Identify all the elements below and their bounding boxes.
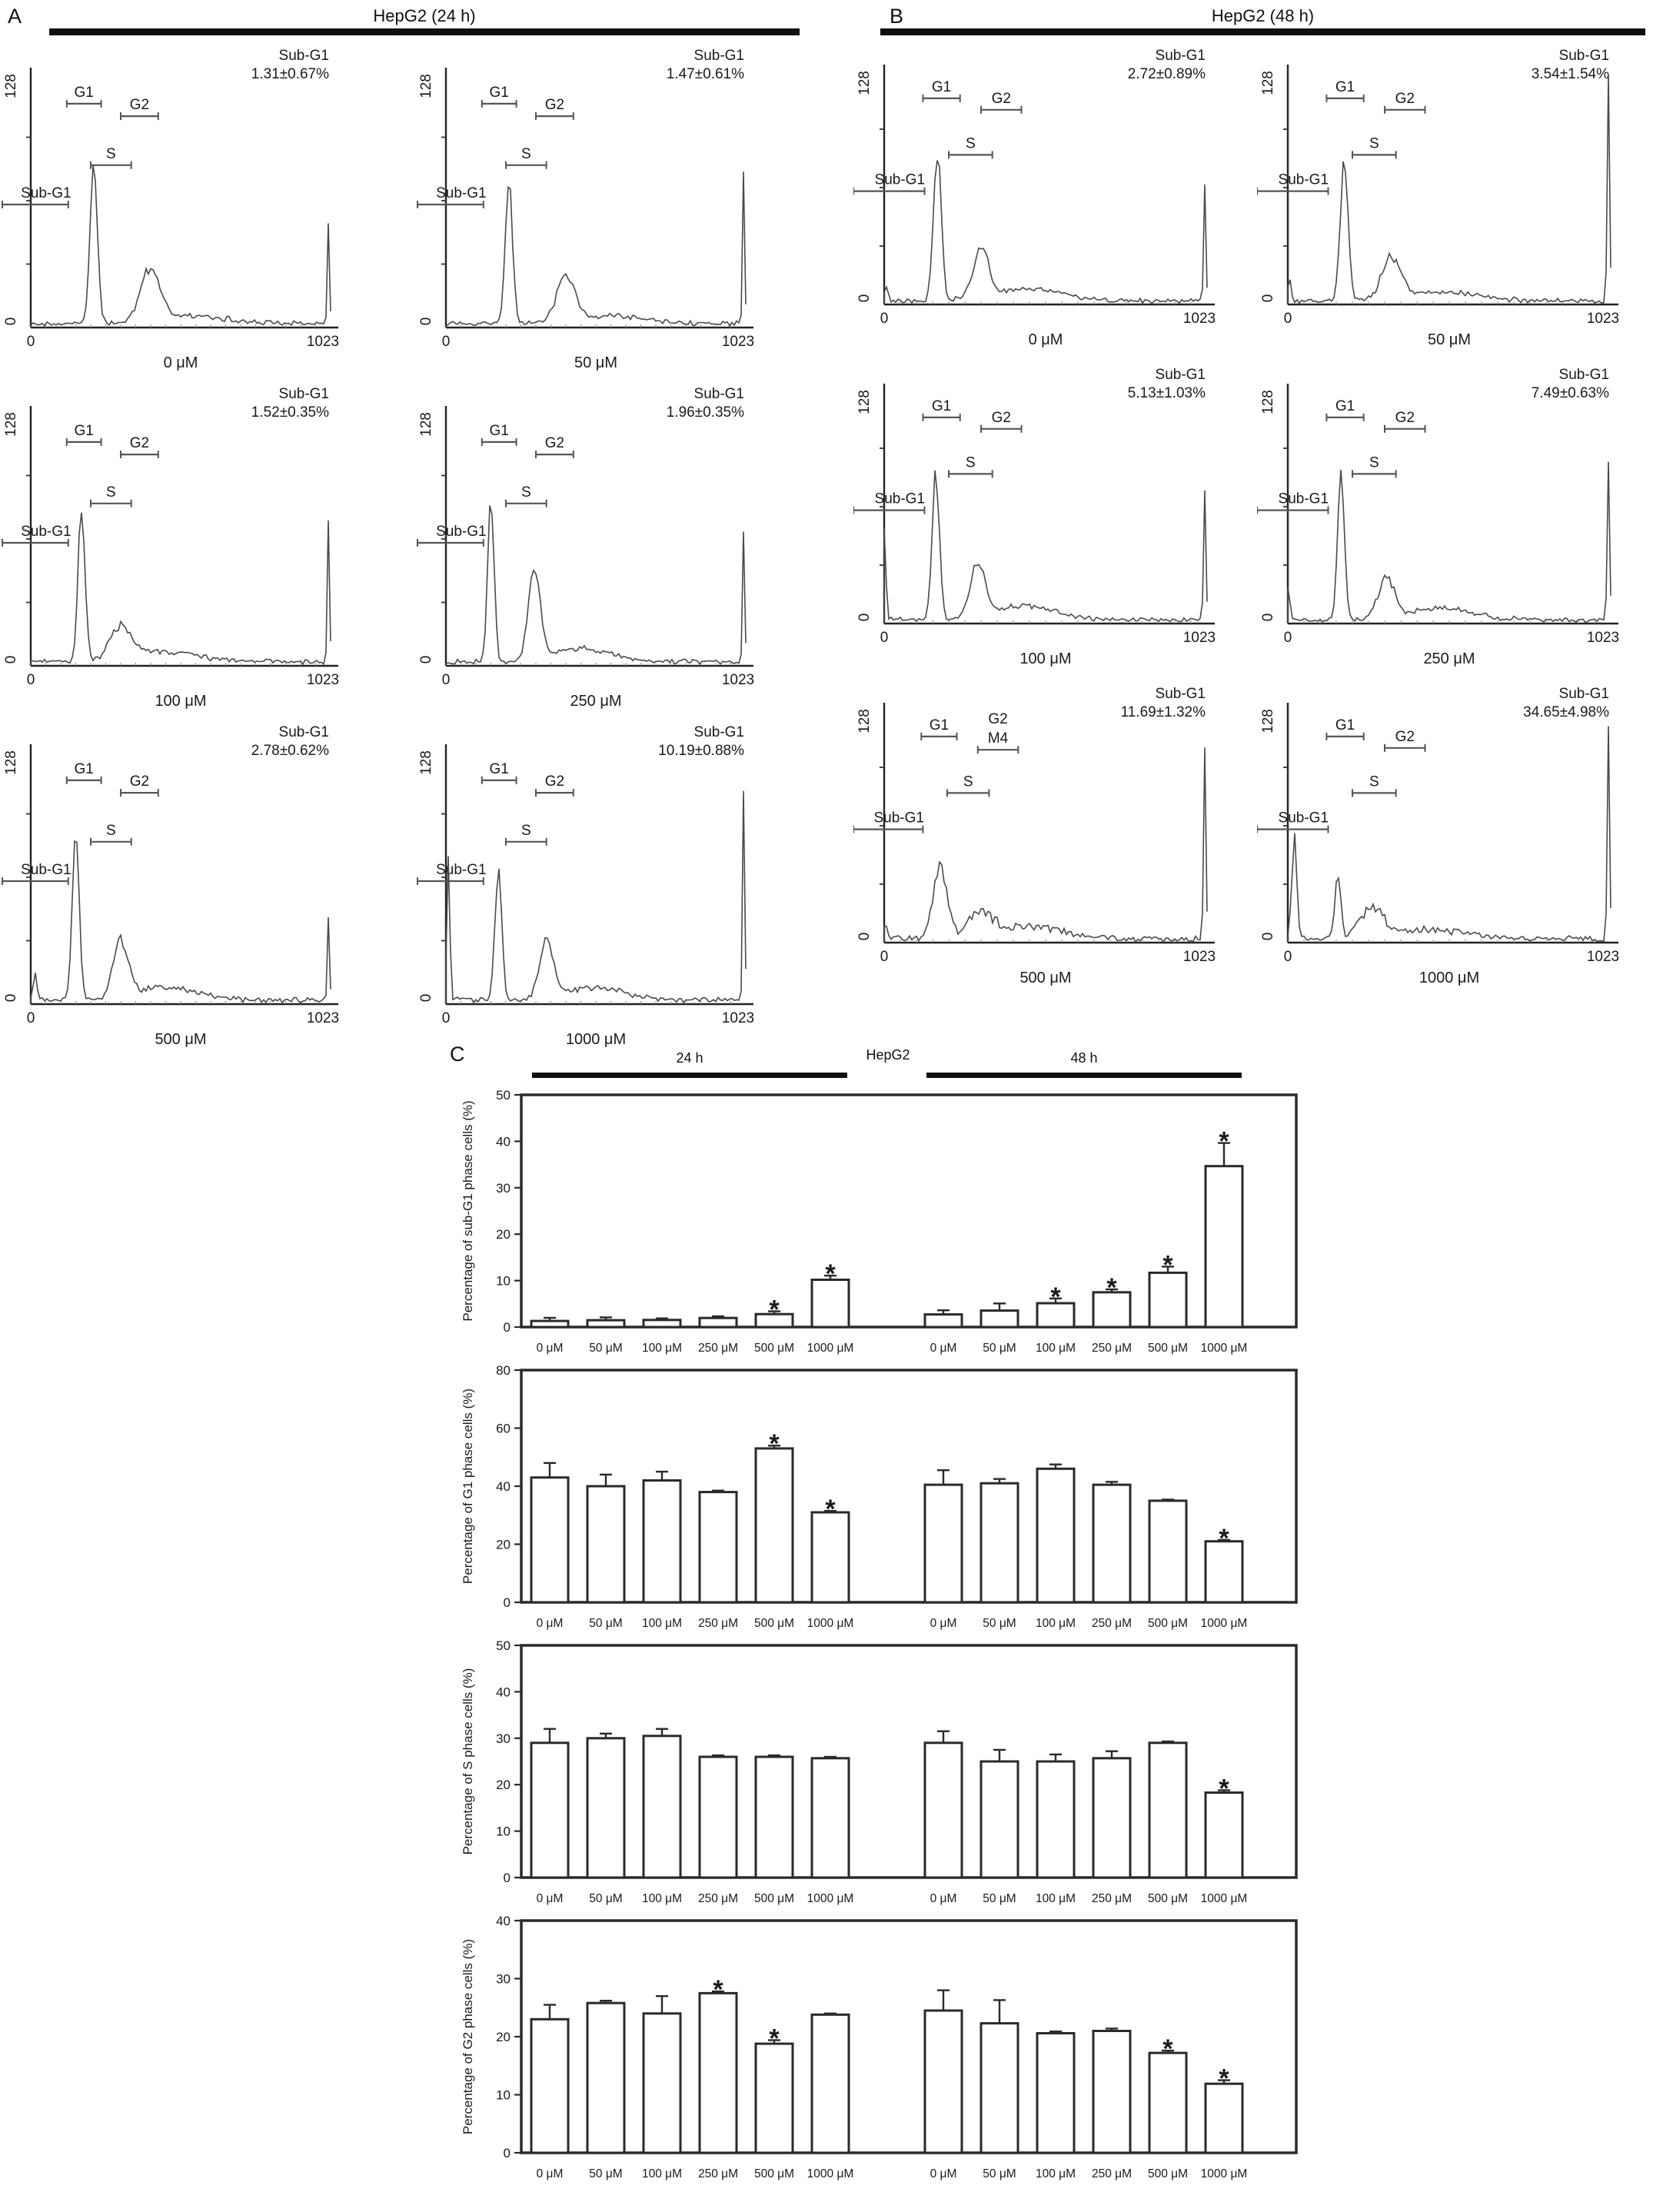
- bar: [587, 1738, 624, 1878]
- bar: [587, 2003, 624, 2153]
- x-max-label: 1023: [1183, 949, 1216, 965]
- y-min-label: 0: [3, 656, 19, 664]
- sig-asterisk: *: [1219, 2064, 1229, 2094]
- concentration-label: 1000 μM: [1419, 970, 1479, 986]
- bar: [531, 1743, 568, 1878]
- bar: [1093, 2031, 1130, 2154]
- category-label: 250 μM: [698, 1617, 738, 1630]
- concentration-label: 250 μM: [570, 693, 621, 710]
- flow-curve: [884, 747, 1207, 943]
- panel-c-bar-charts: C 24 h HepG2 48 h 01020304050Percentage …: [431, 1038, 1315, 2207]
- x-max-label: 1023: [722, 1010, 754, 1026]
- gate-label: G1: [490, 423, 509, 439]
- gate-Sub-G1: Sub-G1: [2, 185, 72, 208]
- gate-label: M4: [988, 730, 1009, 747]
- gate-label: G2: [130, 773, 149, 790]
- y-min-label: 0: [856, 614, 873, 622]
- category-label: 50 μM: [983, 1342, 1016, 1355]
- y-min-label: 0: [1260, 933, 1276, 941]
- category-label: 100 μM: [642, 2167, 682, 2180]
- y-min-label: 0: [3, 994, 19, 1003]
- sig-asterisk: *: [1219, 1127, 1229, 1156]
- gate-label: Sub-G1: [874, 810, 924, 827]
- subg1-annotation-value: 5.13±1.03%: [1128, 385, 1206, 401]
- y-max-label: 128: [418, 74, 434, 98]
- flow-histogram-a-1000μM: 1280010231000 μMSub-G110.19±0.88%G1G2SSu…: [415, 720, 830, 1058]
- gate-label: G1: [932, 79, 951, 95]
- y-max-label: 128: [3, 750, 19, 775]
- x-min-label: 0: [1284, 949, 1292, 965]
- gate-label: Sub-G1: [875, 491, 925, 507]
- sig-asterisk: *: [1106, 1273, 1117, 1302]
- sig-asterisk: *: [1219, 1774, 1229, 1803]
- bar: [531, 1478, 568, 1602]
- x-min-label: 0: [27, 672, 35, 688]
- y-max-label: 128: [856, 390, 873, 414]
- category-label: 0 μM: [930, 1892, 957, 1905]
- c-header-cellline-label: HepG2: [846, 1047, 930, 1063]
- bar: [644, 1320, 680, 1327]
- category-label: 250 μM: [1092, 2167, 1132, 2180]
- gate-label: S: [966, 135, 976, 151]
- concentration-label: 0 μM: [1029, 331, 1063, 348]
- category-label: 250 μM: [1092, 1892, 1132, 1905]
- x-min-label: 0: [1284, 630, 1292, 646]
- gate-G2: G2: [981, 410, 1022, 433]
- gate-label: G1: [75, 85, 94, 101]
- x-min-label: 0: [1284, 311, 1292, 327]
- gates: G1G2M4SSub-G1: [853, 711, 1018, 833]
- gate-label: G2: [130, 97, 149, 113]
- flow-curve: [446, 171, 746, 328]
- concentration-label: 500 μM: [1019, 970, 1071, 986]
- gates: G1G2SSub-G1: [417, 423, 574, 547]
- bar: [1037, 2034, 1074, 2154]
- flow-histogram-a-0μM: 1280010230 μMSub-G11.31±0.67%G1G2SSub-G1: [0, 43, 415, 381]
- y-tick-label: 0: [504, 1320, 511, 1335]
- category-label: 100 μM: [1036, 1342, 1076, 1355]
- y-max-label: 128: [856, 71, 873, 95]
- subg1-annotation-title: Sub-G1: [694, 48, 744, 64]
- gates: G1G2SSub-G1: [1257, 398, 1425, 514]
- category-label: 1000 μM: [1201, 1892, 1248, 1905]
- y-min-label: 0: [856, 294, 873, 303]
- gate-label: Sub-G1: [875, 172, 925, 188]
- gate-label: G1: [930, 717, 949, 733]
- flow-curve: [31, 165, 331, 328]
- category-label: 100 μM: [1036, 1892, 1076, 1905]
- x-min-label: 0: [442, 1010, 451, 1026]
- gate-label: Sub-G1: [436, 862, 486, 878]
- x-max-label: 1023: [722, 672, 754, 688]
- concentration-label: 50 μM: [1428, 331, 1471, 348]
- y-tick-label: 0: [504, 2146, 511, 2160]
- panel-a-letter: A: [8, 5, 22, 28]
- flow-histogram-b-0μM: 1280010230 μMSub-G12.72±0.89%G1G2SSub-G1: [853, 43, 1253, 362]
- bar: [700, 1318, 737, 1327]
- y-axis-title: Percentage of sub-G1 phase cells (%): [461, 1100, 475, 1321]
- sig-asterisk: *: [769, 1295, 780, 1324]
- bar: [700, 1993, 737, 2153]
- y-tick-label: 30: [496, 1972, 511, 1987]
- gate-label: G2: [130, 435, 149, 451]
- panel-b-flow-histograms: B HepG2 (48 h) 1280010230 μMSub-G12.72±0…: [846, 0, 1653, 1069]
- category-label: 0 μM: [537, 1342, 564, 1355]
- y-tick-label: 20: [496, 2030, 511, 2044]
- flow-histogram-b-50μM: 12800102350 μMSub-G13.54±1.54%G1G2SSub-G…: [1257, 43, 1653, 362]
- sig-asterisk: *: [825, 1495, 836, 1524]
- category-label: 1000 μM: [1201, 2167, 1248, 2180]
- cell-cycle-figure: A HepG2 (24 h) 1280010230 μMSub-G11.31±0…: [0, 0, 1653, 2212]
- gate-G2: G2: [1385, 729, 1425, 752]
- y-min-label: 0: [418, 994, 434, 1003]
- bar-chart-3: 010203040Percentage of G2 phase cells (%…: [431, 1914, 1307, 2190]
- gate-label: G1: [75, 423, 94, 439]
- gate-label: S: [521, 823, 531, 839]
- category-label: 1000 μM: [1201, 1617, 1248, 1630]
- subg1-annotation-value: 34.65±4.98%: [1523, 704, 1609, 720]
- gate-Sub-G1: Sub-G1: [2, 862, 72, 885]
- bar-chart-1: 020406080Percentage of G1 phase cells (%…: [431, 1364, 1307, 1639]
- bar: [925, 1315, 962, 1327]
- x-max-label: 1023: [307, 334, 339, 350]
- gate-label: S: [1369, 135, 1379, 151]
- category-label: 500 μM: [754, 1892, 794, 1905]
- panel-a-flow-histograms: A HepG2 (24 h) 1280010230 μMSub-G11.31±0…: [0, 0, 846, 1069]
- gate-label: S: [1369, 454, 1379, 471]
- bar: [756, 2044, 793, 2153]
- x-min-label: 0: [880, 949, 889, 965]
- panel-a-header-bar: [49, 28, 800, 35]
- bar: [1037, 1469, 1074, 1602]
- bar: [587, 1486, 624, 1602]
- gate-G1: G1: [482, 85, 517, 108]
- gate-G1: G1: [67, 761, 101, 784]
- category-label: 250 μM: [698, 1342, 738, 1355]
- bar: [587, 1320, 624, 1327]
- flow-histogram-b-250μM: 128001023250 μMSub-G17.49±0.63%G1G2SSub-…: [1257, 362, 1653, 681]
- gate-label: G1: [75, 761, 94, 777]
- y-tick-label: 40: [496, 1134, 511, 1149]
- sig-asterisk: *: [1219, 1524, 1229, 1553]
- bar: [1149, 1501, 1186, 1602]
- gate-Sub-G1: Sub-G1: [853, 172, 925, 195]
- gate-label: Sub-G1: [436, 185, 486, 201]
- sig-asterisk: *: [825, 1259, 836, 1289]
- bar: [1206, 1793, 1242, 1878]
- category-label: 1000 μM: [807, 1617, 854, 1630]
- bar: [644, 2014, 680, 2153]
- concentration-label: 100 μM: [155, 693, 206, 710]
- x-max-label: 1023: [1587, 311, 1619, 327]
- bar: [1206, 1166, 1242, 1327]
- subg1-annotation-value: 11.69±1.32%: [1121, 704, 1206, 720]
- category-label: 50 μM: [589, 2167, 622, 2180]
- y-tick-label: 20: [496, 1778, 511, 1792]
- gate-S: S: [949, 135, 993, 158]
- c-header-48h-label: 48 h: [926, 1050, 1242, 1066]
- gate-G2: G2: [536, 773, 574, 797]
- gate-G2: G2: [536, 435, 574, 458]
- y-min-label: 0: [3, 318, 19, 326]
- sig-asterisk: *: [769, 1429, 780, 1459]
- y-min-label: 0: [856, 933, 873, 941]
- category-label: 50 μM: [589, 1892, 622, 1905]
- gate-Sub-G1: Sub-G1: [417, 524, 487, 547]
- category-label: 500 μM: [1148, 2167, 1188, 2180]
- subg1-annotation-value: 2.78±0.62%: [251, 743, 329, 759]
- gate-label: G1: [1335, 717, 1355, 733]
- gate-label: S: [1369, 773, 1379, 790]
- gates: G1G2SSub-G1: [853, 79, 1021, 195]
- gate-label: Sub-G1: [436, 524, 486, 540]
- gates: G1G2SSub-G1: [417, 85, 574, 208]
- c-header-24h-bar: [532, 1073, 847, 1078]
- gate-label: S: [521, 146, 531, 162]
- flow-histogram-b-1000μM: 1280010231000 μMSub-G134.65±4.98%G1G2SSu…: [1257, 681, 1653, 1000]
- gate-label: G2: [1395, 729, 1415, 745]
- y-tick-label: 50: [496, 1639, 511, 1653]
- subg1-annotation-title: Sub-G1: [1156, 367, 1206, 383]
- subg1-annotation-title: Sub-G1: [1559, 367, 1609, 383]
- gate-label: G2: [1395, 410, 1415, 426]
- y-max-label: 128: [1260, 709, 1276, 733]
- category-label: 50 μM: [983, 2167, 1016, 2180]
- gate-S: S: [1352, 454, 1396, 477]
- gate-G2: G2: [121, 435, 158, 458]
- category-label: 100 μM: [642, 1342, 682, 1355]
- subg1-annotation-title: Sub-G1: [694, 724, 744, 740]
- y-tick-label: 0: [504, 1871, 511, 1885]
- panel-b-header-bar: [880, 28, 1645, 35]
- y-tick-label: 40: [496, 1685, 511, 1699]
- gate-label: Sub-G1: [1279, 810, 1329, 827]
- x-min-label: 0: [27, 1010, 35, 1026]
- x-max-label: 1023: [1183, 630, 1216, 646]
- panel-a-title: HepG2 (24 h): [49, 6, 800, 26]
- category-label: 250 μM: [1092, 1342, 1132, 1355]
- y-tick-label: 60: [496, 1422, 511, 1436]
- category-label: 100 μM: [1036, 2167, 1076, 2180]
- y-min-label: 0: [1260, 614, 1276, 622]
- subg1-annotation-value: 10.19±0.88%: [658, 743, 744, 759]
- subg1-annotation-title: Sub-G1: [279, 724, 329, 740]
- gate-G1: G1: [67, 423, 101, 446]
- bar: [1206, 2084, 1242, 2153]
- gate-G2-M4: G2M4: [978, 711, 1019, 753]
- y-min-label: 0: [1260, 294, 1276, 303]
- gate-S: S: [1352, 135, 1396, 158]
- gate-label: S: [106, 823, 116, 839]
- concentration-label: 500 μM: [155, 1031, 206, 1048]
- gate-label: Sub-G1: [1279, 172, 1329, 188]
- sig-asterisk: *: [1162, 2034, 1173, 2064]
- gate-Sub-G1: Sub-G1: [853, 810, 924, 833]
- y-max-label: 128: [1260, 71, 1276, 95]
- bar: [1093, 1485, 1130, 1602]
- gates: G1G2SSub-G1: [1257, 717, 1425, 833]
- y-tick-label: 50: [496, 1089, 511, 1103]
- category-label: 50 μM: [983, 1892, 1016, 1905]
- y-tick-label: 10: [496, 2088, 511, 2103]
- gate-label: G1: [490, 85, 509, 101]
- subg1-annotation-value: 1.52±0.35%: [251, 404, 329, 421]
- y-max-label: 128: [3, 412, 19, 437]
- gate-label: S: [106, 484, 116, 501]
- gate-label: G2: [1395, 91, 1415, 107]
- concentration-label: 0 μM: [164, 354, 198, 371]
- series-24h: 0 μM50 μM100 μM*250 μM*500 μM1000 μM: [531, 1975, 853, 2180]
- flow-histogram-b-500μM: 128001023500 μMSub-G111.69±1.32%G1G2M4SS…: [853, 681, 1253, 1000]
- flow-curve: [446, 791, 746, 1004]
- gates: G1G2SSub-G1: [1257, 79, 1425, 195]
- gate-S: S: [91, 146, 131, 169]
- flow-curve: [1288, 75, 1611, 304]
- gate-G2: G2: [1385, 410, 1425, 433]
- sig-asterisk: *: [769, 2024, 780, 2054]
- bar: [700, 1492, 737, 1602]
- category-label: 0 μM: [537, 1892, 564, 1905]
- gate-Sub-G1: Sub-G1: [1257, 810, 1329, 833]
- y-tick-label: 30: [496, 1731, 511, 1746]
- y-tick-label: 20: [496, 1227, 511, 1242]
- category-label: 1000 μM: [1201, 1342, 1248, 1355]
- category-label: 50 μM: [589, 1342, 622, 1355]
- gate-G1: G1: [921, 717, 956, 740]
- flow-curve: [446, 505, 746, 666]
- bar: [1149, 1743, 1186, 1878]
- category-label: 500 μM: [754, 1342, 794, 1355]
- category-label: 500 μM: [1148, 1892, 1188, 1905]
- c-header-24h-label: 24 h: [532, 1050, 847, 1066]
- flow-curve: [31, 513, 331, 666]
- gate-S: S: [1352, 773, 1396, 797]
- category-label: 1000 μM: [807, 1892, 854, 1905]
- category-label: 250 μM: [1092, 1617, 1132, 1630]
- bar: [925, 1485, 962, 1602]
- gate-label: G1: [932, 398, 951, 414]
- subg1-annotation-title: Sub-G1: [694, 386, 744, 402]
- subg1-annotation-title: Sub-G1: [279, 386, 329, 402]
- series-24h: 0 μM50 μM100 μM250 μM*500 μM*1000 μM: [531, 1259, 853, 1355]
- bar: [531, 1321, 568, 1327]
- subg1-annotation-value: 7.49±0.63%: [1532, 385, 1609, 401]
- sig-asterisk: *: [1162, 1250, 1173, 1279]
- category-label: 0 μM: [537, 1617, 564, 1630]
- gate-label: G2: [988, 711, 1007, 727]
- gate-G1: G1: [67, 85, 101, 108]
- gate-Sub-G1: Sub-G1: [2, 524, 72, 547]
- gate-label: S: [966, 454, 976, 471]
- gate-label: S: [521, 484, 531, 501]
- category-label: 0 μM: [930, 2167, 957, 2180]
- series-48h: 0 μM50 μM100 μM250 μM500 μM*1000 μM: [925, 1465, 1247, 1630]
- panel-c-letter: C: [450, 1043, 465, 1066]
- gate-label: Sub-G1: [21, 862, 71, 878]
- series-48h: 0 μM50 μM100 μM250 μM500 μM*1000 μM: [925, 1731, 1247, 1905]
- subg1-annotation-value: 2.72±0.89%: [1128, 66, 1206, 82]
- flow-histogram-a-250μM: 128001023250 μMSub-G11.96±0.35%G1G2SSub-…: [415, 381, 830, 720]
- gate-label: S: [963, 773, 973, 790]
- gate-label: Sub-G1: [21, 524, 71, 540]
- concentration-label: 100 μM: [1019, 650, 1071, 667]
- gate-S: S: [91, 823, 131, 846]
- panel-c-chart-stack: 01020304050Percentage of sub-G1 phase ce…: [431, 1089, 1315, 2190]
- y-max-label: 128: [1260, 390, 1276, 414]
- subg1-annotation-title: Sub-G1: [1559, 48, 1609, 64]
- gates: G1G2SSub-G1: [2, 85, 158, 208]
- x-max-label: 1023: [1183, 311, 1216, 327]
- bar: [981, 1761, 1018, 1878]
- gate-S: S: [947, 773, 989, 797]
- bar: [812, 1512, 849, 1602]
- flow-histogram-b-100μM: 128001023100 μMSub-G15.13±1.03%G1G2SSub-…: [853, 362, 1253, 681]
- y-axis-title: Percentage of G2 phase cells (%): [461, 1939, 475, 2134]
- panel-b-title: HepG2 (48 h): [880, 6, 1645, 26]
- x-max-label: 1023: [722, 334, 754, 350]
- subg1-annotation-value: 1.31±0.67%: [251, 66, 329, 82]
- category-label: 0 μM: [930, 1617, 957, 1630]
- gate-G1: G1: [1326, 79, 1363, 102]
- y-tick-label: 0: [504, 1595, 511, 1610]
- gate-G2: G2: [536, 97, 574, 120]
- category-label: 250 μM: [698, 2167, 738, 2180]
- panel-b-grid: 1280010230 μMSub-G12.72±0.89%G1G2SSub-G1…: [853, 43, 1653, 1000]
- gate-label: G1: [490, 761, 509, 777]
- category-label: 100 μM: [1036, 1617, 1076, 1630]
- gate-label: G2: [545, 97, 564, 113]
- gate-Sub-G1: Sub-G1: [417, 862, 487, 885]
- y-max-label: 128: [418, 412, 434, 437]
- bar: [756, 1757, 793, 1878]
- panel-c-header: C 24 h HepG2 48 h: [431, 1038, 1315, 1089]
- y-tick-label: 10: [496, 1274, 511, 1289]
- y-tick-label: 40: [496, 1914, 511, 1928]
- x-min-label: 0: [442, 672, 451, 688]
- concentration-label: 50 μM: [574, 354, 617, 371]
- subg1-annotation-title: Sub-G1: [1156, 686, 1206, 702]
- y-max-label: 128: [856, 709, 873, 733]
- y-tick-label: 40: [496, 1479, 511, 1494]
- flow-curve: [31, 841, 331, 1004]
- c-header-48h-bar: [926, 1073, 1242, 1078]
- x-max-label: 1023: [307, 1010, 339, 1026]
- bar: [1037, 1761, 1074, 1878]
- subg1-annotation-value: 3.54±1.54%: [1532, 66, 1609, 82]
- gate-label: G1: [1335, 398, 1355, 414]
- bar: [981, 2024, 1018, 2153]
- flow-histogram-a-100μM: 128001023100 μMSub-G11.52±0.35%G1G2SSub-…: [0, 381, 415, 720]
- gate-S: S: [506, 484, 547, 507]
- gates: G1G2SSub-G1: [2, 761, 158, 885]
- gate-G1: G1: [923, 398, 960, 421]
- gate-S: S: [91, 484, 131, 507]
- gate-Sub-G1: Sub-G1: [853, 491, 925, 514]
- gate-G2: G2: [121, 773, 158, 797]
- series-48h: 0 μM50 μM*100 μM*250 μM*500 μM*1000 μM: [925, 1127, 1247, 1355]
- bar: [981, 1311, 1018, 1327]
- gates: G1G2SSub-G1: [417, 761, 574, 885]
- flow-histogram-a-500μM: 128001023500 μMSub-G12.78±0.62%G1G2SSub-…: [0, 720, 415, 1058]
- x-max-label: 1023: [1587, 630, 1619, 646]
- subg1-annotation-title: Sub-G1: [1559, 686, 1609, 702]
- category-label: 0 μM: [930, 1342, 957, 1355]
- y-max-label: 128: [418, 750, 434, 775]
- gate-label: G2: [992, 91, 1011, 107]
- gate-S: S: [949, 454, 993, 477]
- category-label: 1000 μM: [807, 2167, 854, 2180]
- gate-G1: G1: [1326, 717, 1363, 740]
